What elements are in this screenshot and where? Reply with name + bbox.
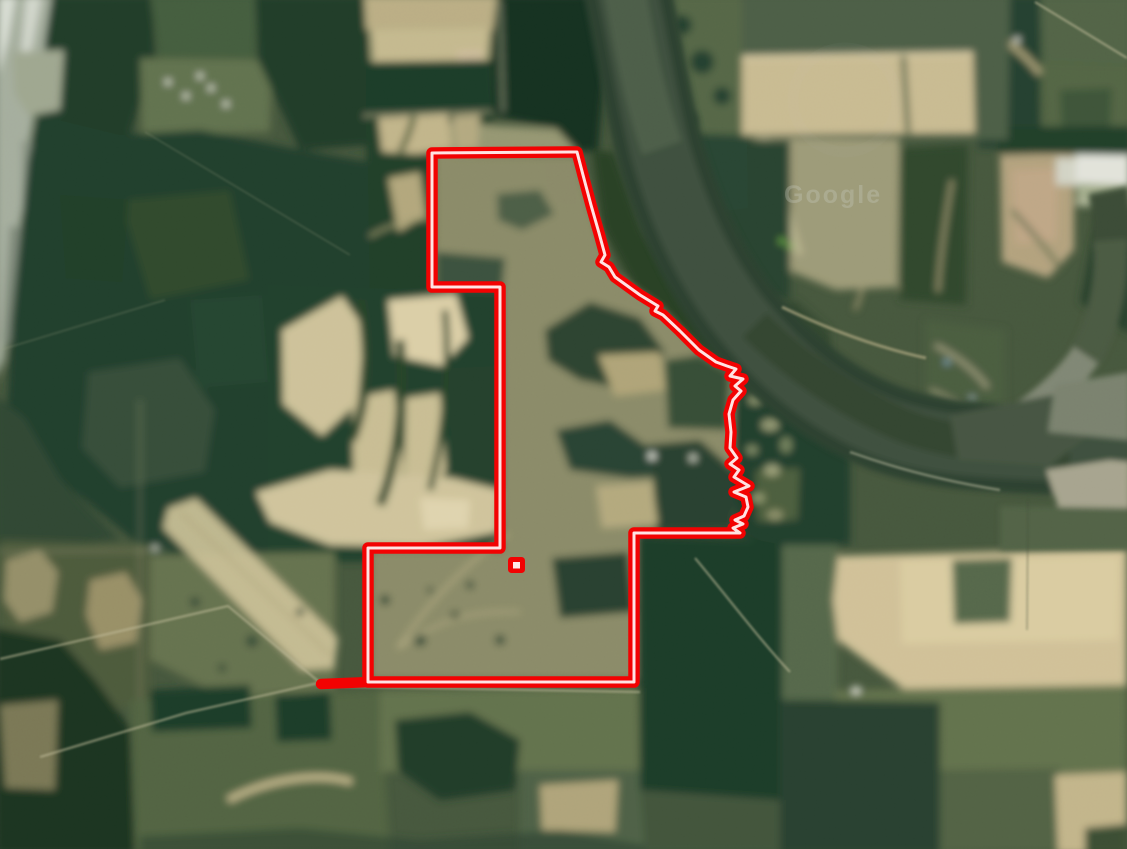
- svg-text:Google: Google: [784, 181, 882, 209]
